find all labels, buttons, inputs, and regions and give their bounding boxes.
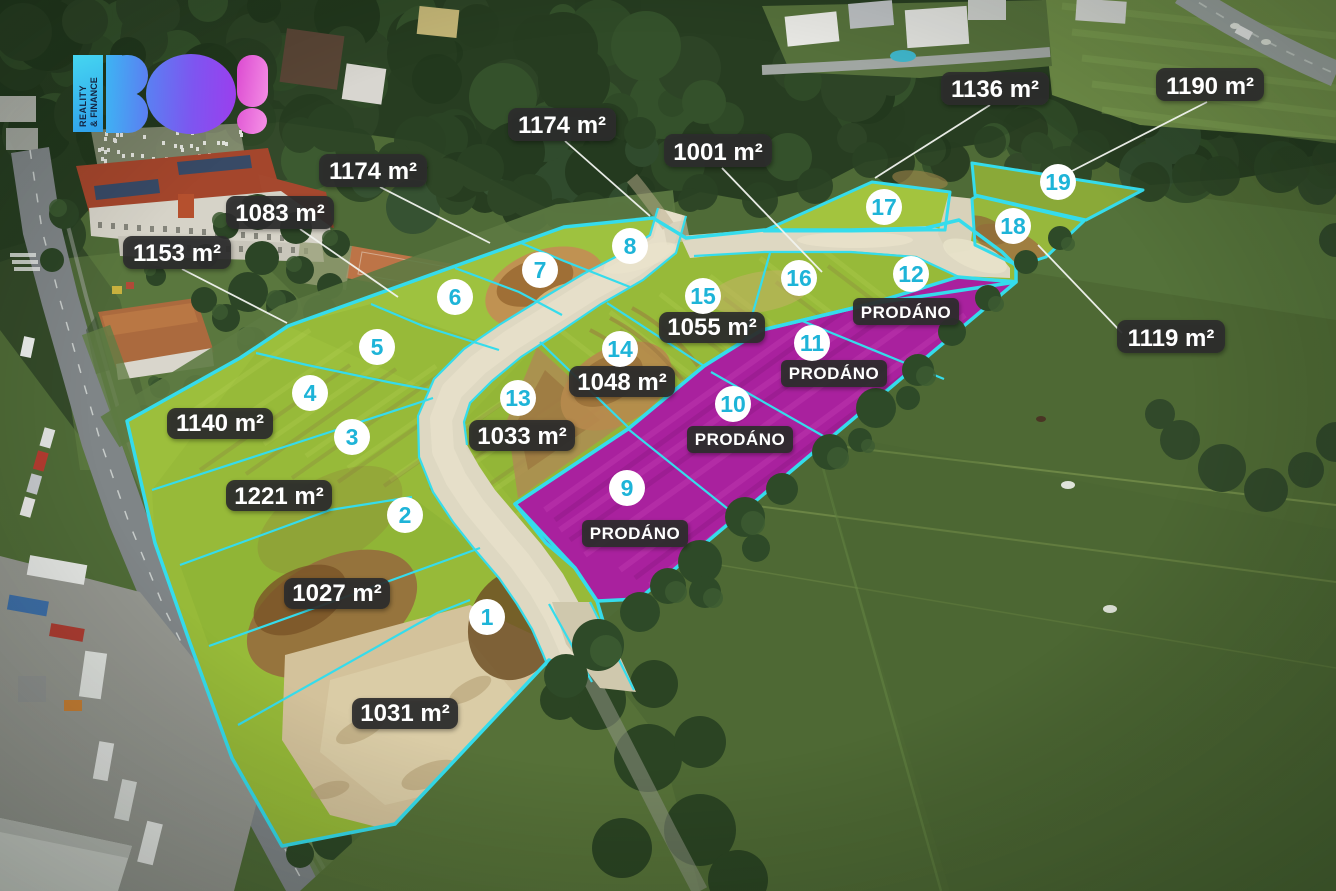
svg-text:3: 3 bbox=[346, 424, 359, 450]
svg-text:1031 m²: 1031 m² bbox=[360, 700, 449, 727]
svg-text:REALITY: REALITY bbox=[78, 85, 88, 127]
svg-text:17: 17 bbox=[871, 194, 897, 220]
svg-text:1221 m²: 1221 m² bbox=[234, 483, 323, 510]
svg-text:4: 4 bbox=[304, 380, 317, 406]
svg-text:18: 18 bbox=[1000, 213, 1026, 239]
svg-text:1: 1 bbox=[481, 604, 494, 630]
svg-text:2: 2 bbox=[399, 502, 412, 528]
svg-text:PRODÁNO: PRODÁNO bbox=[789, 364, 879, 383]
svg-text:8: 8 bbox=[624, 233, 637, 259]
svg-text:13: 13 bbox=[505, 385, 531, 411]
svg-text:1136 m²: 1136 m² bbox=[951, 76, 1039, 103]
svg-text:14: 14 bbox=[607, 336, 633, 362]
svg-text:1055 m²: 1055 m² bbox=[667, 314, 756, 341]
svg-text:1048 m²: 1048 m² bbox=[577, 369, 666, 396]
svg-text:1174 m²: 1174 m² bbox=[518, 112, 606, 139]
svg-text:& FINANCE: & FINANCE bbox=[89, 77, 99, 127]
svg-text:1119 m²: 1119 m² bbox=[1128, 325, 1215, 352]
svg-text:11: 11 bbox=[800, 330, 825, 356]
svg-text:5: 5 bbox=[371, 334, 384, 360]
svg-text:1174 m²: 1174 m² bbox=[329, 158, 417, 185]
svg-text:PRODÁNO: PRODÁNO bbox=[861, 303, 951, 322]
svg-text:16: 16 bbox=[786, 265, 812, 291]
svg-text:9: 9 bbox=[621, 475, 634, 501]
svg-text:1190 m²: 1190 m² bbox=[1166, 73, 1254, 100]
svg-text:19: 19 bbox=[1045, 169, 1071, 195]
svg-text:7: 7 bbox=[534, 257, 547, 283]
svg-text:15: 15 bbox=[690, 283, 716, 309]
svg-text:1083 m²: 1083 m² bbox=[235, 200, 324, 227]
svg-text:PRODÁNO: PRODÁNO bbox=[695, 430, 785, 449]
svg-text:12: 12 bbox=[898, 261, 924, 287]
svg-text:1001 m²: 1001 m² bbox=[673, 139, 762, 166]
svg-text:PRODÁNO: PRODÁNO bbox=[590, 524, 680, 543]
svg-text:1140 m²: 1140 m² bbox=[176, 410, 264, 437]
svg-text:6: 6 bbox=[449, 284, 462, 310]
svg-text:1033 m²: 1033 m² bbox=[477, 423, 566, 450]
svg-text:10: 10 bbox=[720, 391, 746, 417]
svg-text:1027 m²: 1027 m² bbox=[292, 580, 381, 607]
svg-text:1153 m²: 1153 m² bbox=[133, 240, 221, 267]
